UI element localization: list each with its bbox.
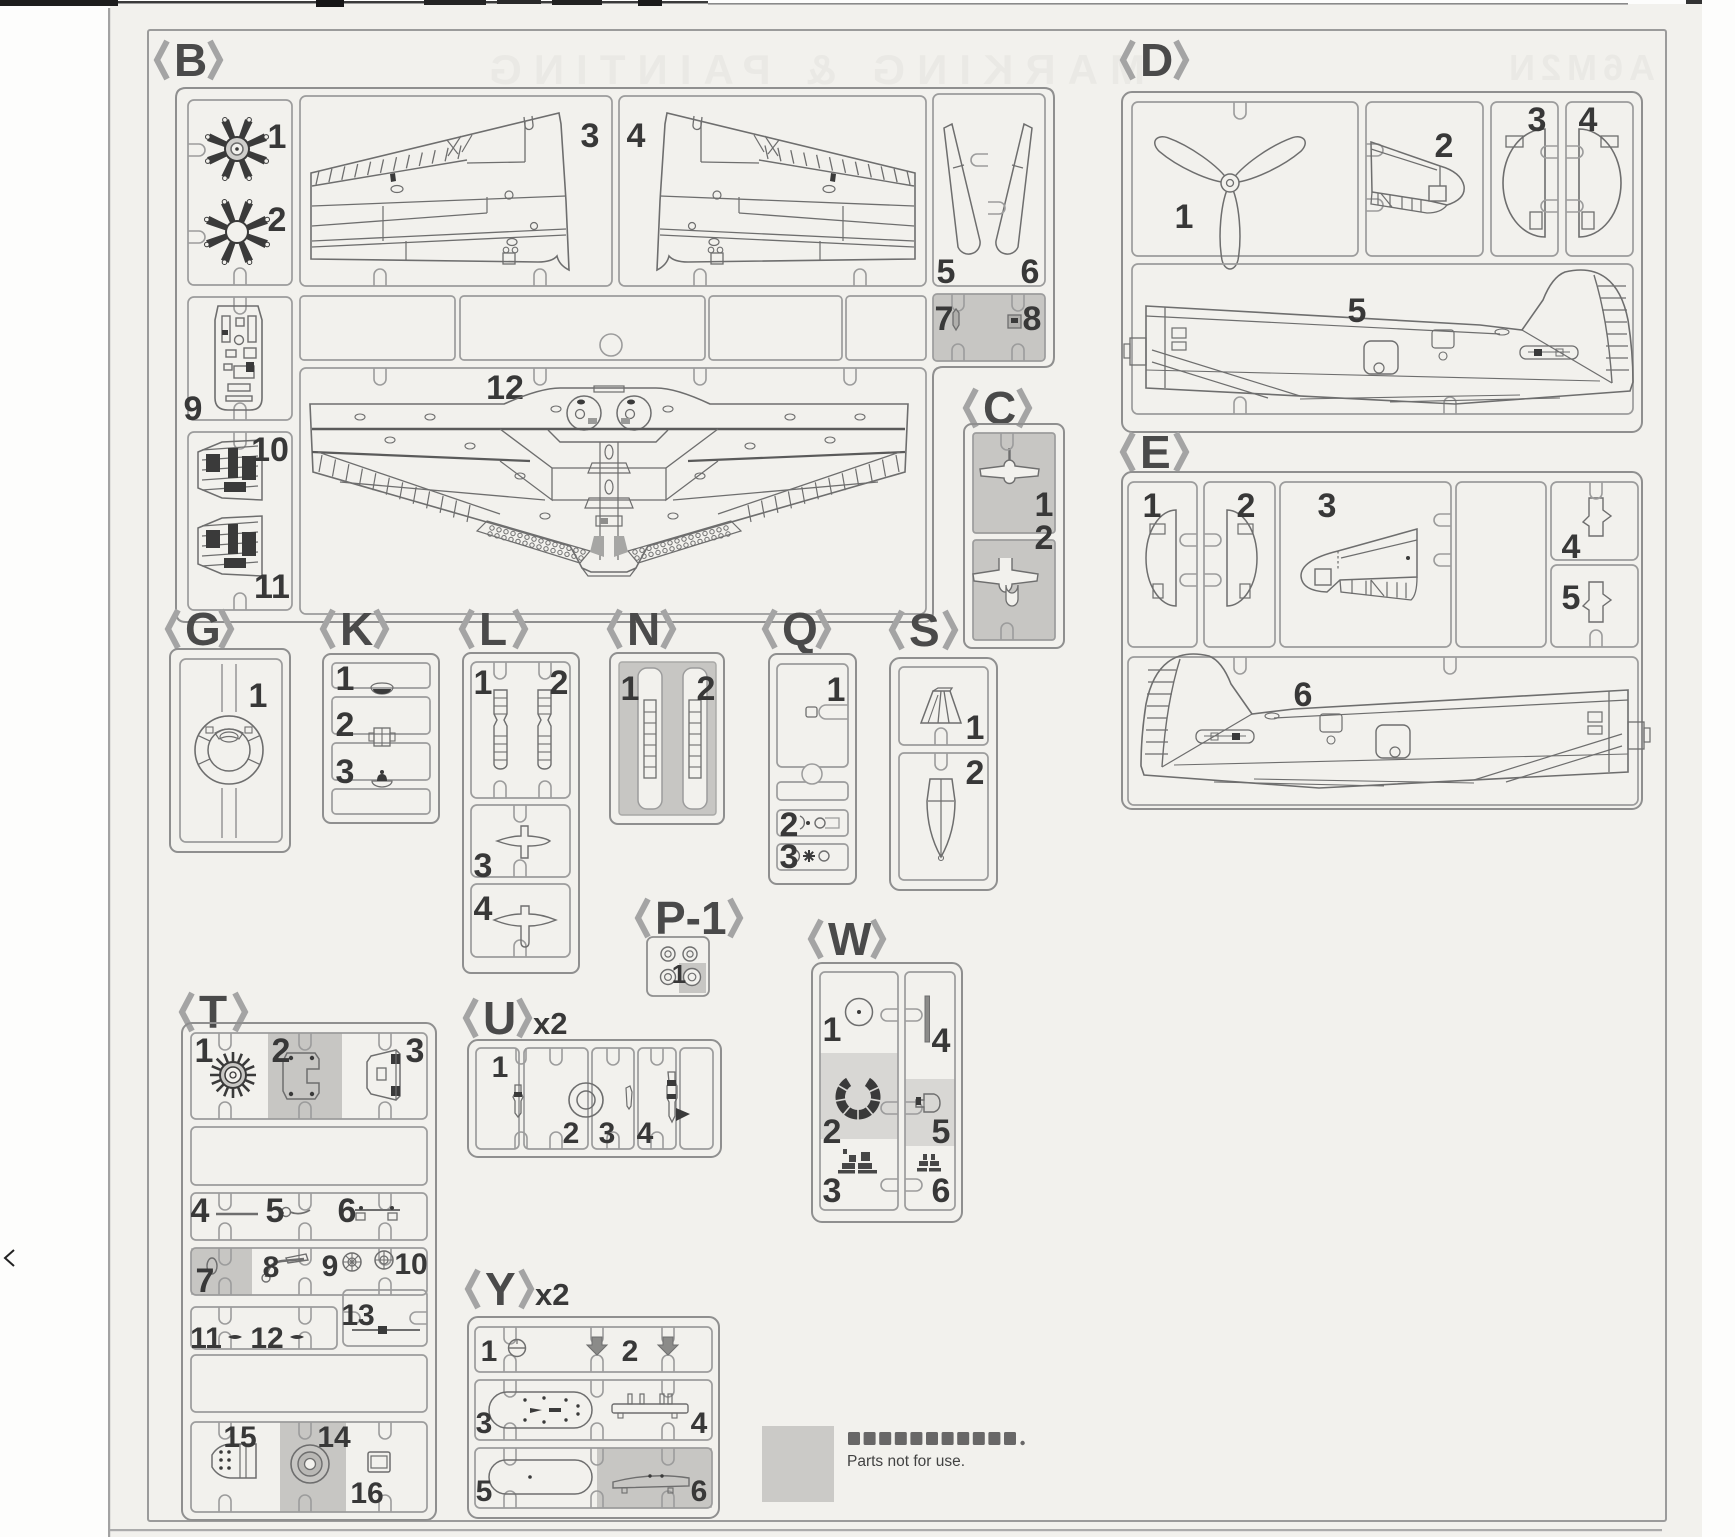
svg-text:7: 7 <box>196 1262 215 1300</box>
svg-text:B: B <box>174 34 207 86</box>
svg-text:6: 6 <box>1021 253 1040 291</box>
svg-text:S: S <box>909 604 940 656</box>
svg-text:2: 2 <box>550 664 569 702</box>
svg-text:11: 11 <box>190 1322 222 1355</box>
svg-text:2: 2 <box>268 201 287 239</box>
svg-text:Q: Q <box>782 603 818 655</box>
svg-text:3: 3 <box>1528 101 1547 139</box>
svg-text:4: 4 <box>627 117 646 155</box>
svg-text:3: 3 <box>474 847 493 885</box>
svg-text:3: 3 <box>1318 487 1337 525</box>
svg-text:U: U <box>483 992 516 1044</box>
svg-text:A6M2N: A6M2N <box>1503 47 1655 88</box>
svg-text:3: 3 <box>780 838 799 876</box>
svg-text:6: 6 <box>338 1192 357 1230</box>
svg-text:3: 3 <box>599 1117 616 1150</box>
svg-text:5: 5 <box>476 1475 493 1508</box>
svg-text:1: 1 <box>336 660 355 698</box>
svg-text:5: 5 <box>937 253 956 291</box>
svg-text:12: 12 <box>250 1322 283 1355</box>
svg-text:9: 9 <box>184 390 203 428</box>
svg-text:1: 1 <box>1175 198 1194 236</box>
svg-text:C: C <box>983 382 1016 434</box>
svg-text:13: 13 <box>341 1299 374 1332</box>
svg-text:1: 1 <box>823 1011 842 1049</box>
svg-text:10: 10 <box>251 431 289 469</box>
svg-text:4: 4 <box>1579 101 1598 139</box>
svg-text:1: 1 <box>621 670 640 708</box>
svg-text:2: 2 <box>272 1032 291 1070</box>
svg-text:2: 2 <box>563 1117 580 1150</box>
svg-text:4: 4 <box>691 1407 708 1440</box>
svg-text:2: 2 <box>1237 487 1256 525</box>
svg-text:2: 2 <box>622 1335 639 1368</box>
svg-text:1: 1 <box>492 1051 509 1084</box>
svg-text:3: 3 <box>406 1032 425 1070</box>
svg-text:5: 5 <box>266 1192 285 1230</box>
svg-text:3: 3 <box>336 753 355 791</box>
svg-text:12: 12 <box>486 369 524 407</box>
svg-text:4: 4 <box>191 1192 210 1230</box>
svg-text:2: 2 <box>697 670 716 708</box>
svg-text:2: 2 <box>823 1113 842 1151</box>
svg-text:E: E <box>1140 426 1171 478</box>
svg-text:L: L <box>479 603 507 655</box>
svg-text:G: G <box>185 603 221 655</box>
svg-text:2: 2 <box>966 754 985 792</box>
svg-text:10: 10 <box>394 1248 427 1281</box>
svg-text:9: 9 <box>322 1250 339 1283</box>
svg-text:16: 16 <box>350 1477 383 1510</box>
svg-text:1: 1 <box>672 959 686 989</box>
svg-text:1: 1 <box>268 118 287 156</box>
svg-text:8: 8 <box>263 1251 280 1284</box>
svg-text:x2: x2 <box>535 1277 569 1312</box>
svg-text:5: 5 <box>932 1113 951 1151</box>
svg-text:1: 1 <box>1143 487 1162 525</box>
svg-text:4: 4 <box>474 890 493 928</box>
svg-text:K: K <box>340 603 373 655</box>
svg-text:3: 3 <box>581 117 600 155</box>
svg-text:4: 4 <box>1562 528 1581 566</box>
svg-text:1: 1 <box>249 677 268 715</box>
svg-text:D: D <box>1140 34 1173 86</box>
svg-text:8: 8 <box>1023 300 1042 338</box>
svg-text:1: 1 <box>474 664 493 702</box>
svg-text:7: 7 <box>935 300 954 338</box>
svg-text:Parts not for use.: Parts not for use. <box>847 1453 965 1470</box>
svg-text:5: 5 <box>1562 579 1581 617</box>
svg-text:W: W <box>828 913 872 965</box>
svg-text:11: 11 <box>254 568 290 606</box>
svg-text:2: 2 <box>336 706 355 744</box>
svg-text:N: N <box>627 603 660 655</box>
svg-text:x2: x2 <box>533 1006 567 1041</box>
svg-text:MARKING & PAINTING: MARKING & PAINTING <box>477 46 1145 93</box>
svg-text:T: T <box>199 986 227 1038</box>
svg-text:3: 3 <box>823 1172 842 1210</box>
svg-text:1: 1 <box>195 1032 214 1070</box>
svg-text:4: 4 <box>932 1022 951 1060</box>
svg-text:14: 14 <box>317 1421 351 1454</box>
svg-text:1: 1 <box>966 709 985 747</box>
svg-text:6: 6 <box>691 1475 708 1508</box>
svg-text:5: 5 <box>1348 292 1367 330</box>
svg-text:6: 6 <box>1294 676 1313 714</box>
svg-text:1: 1 <box>481 1335 498 1368</box>
svg-text:2: 2 <box>1435 127 1454 165</box>
svg-text:6: 6 <box>932 1172 951 1210</box>
svg-text:1: 1 <box>827 671 846 709</box>
svg-text:4: 4 <box>637 1117 654 1150</box>
svg-text:15: 15 <box>223 1421 256 1454</box>
svg-text:3: 3 <box>476 1407 493 1440</box>
svg-text:Y: Y <box>485 1263 516 1315</box>
svg-text:2: 2 <box>1035 519 1054 557</box>
